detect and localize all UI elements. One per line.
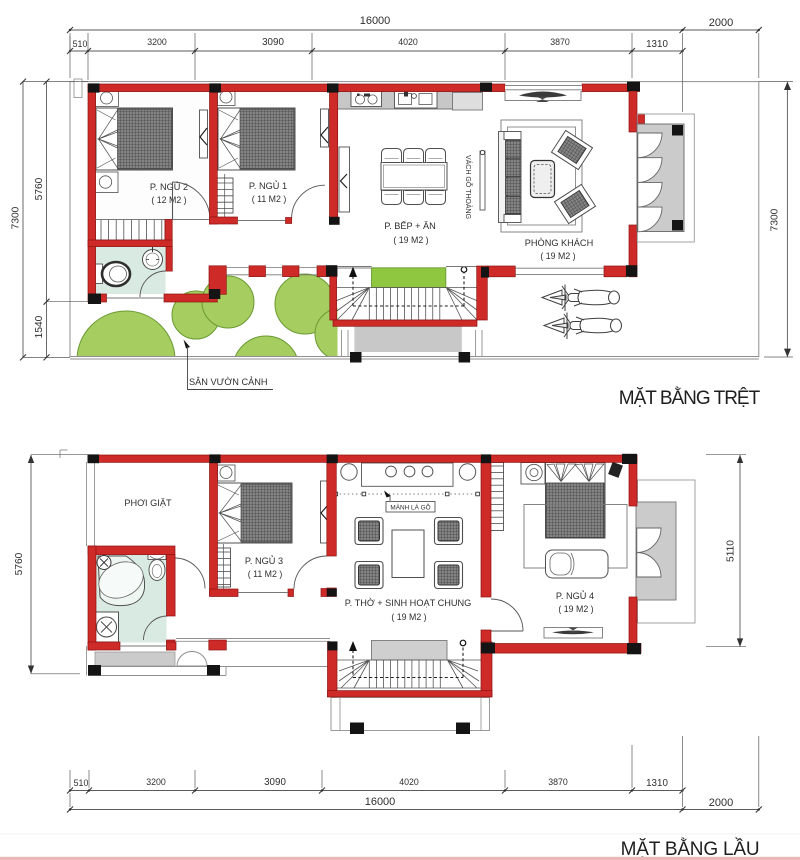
svg-text:P. BẾP + ĂN: P. BẾP + ĂN xyxy=(384,221,436,231)
svg-text:PHƠI GIẶT: PHƠI GIẶT xyxy=(124,498,172,508)
svg-text:510: 510 xyxy=(74,778,89,788)
svg-text:( 19 M2 ): ( 19 M2 ) xyxy=(558,604,593,614)
svg-text:4020: 4020 xyxy=(398,37,418,47)
svg-text:( 11 M2 ): ( 11 M2 ) xyxy=(252,194,287,204)
svg-text:MẶT BẰNG LẦU: MẶT BẰNG LẦU xyxy=(621,838,760,860)
svg-text:1310: 1310 xyxy=(646,778,668,789)
svg-text:5760: 5760 xyxy=(34,177,45,200)
svg-text:3870: 3870 xyxy=(550,37,570,47)
svg-text:( 19 M2 ): ( 19 M2 ) xyxy=(540,251,575,261)
svg-text:1540: 1540 xyxy=(34,315,45,338)
svg-text:2000: 2000 xyxy=(709,797,733,809)
svg-text:3200: 3200 xyxy=(147,37,167,47)
svg-text:P. NGỦ 1: P. NGỦ 1 xyxy=(249,180,287,191)
svg-text:4020: 4020 xyxy=(399,777,419,787)
svg-text:P. NGỦ 4: P. NGỦ 4 xyxy=(556,590,594,601)
svg-text:510: 510 xyxy=(73,39,88,49)
svg-text:( 12 M2 ): ( 12 M2 ) xyxy=(151,195,186,205)
svg-text:5760: 5760 xyxy=(14,552,25,575)
svg-text:5110: 5110 xyxy=(726,540,737,562)
svg-text:2000: 2000 xyxy=(709,17,733,29)
svg-text:16000: 16000 xyxy=(360,15,391,27)
svg-text:3870: 3870 xyxy=(548,777,568,787)
svg-text:1310: 1310 xyxy=(646,39,668,50)
svg-text:3200: 3200 xyxy=(146,777,166,787)
svg-text:MẶT BẰNG TRỆT: MẶT BẰNG TRỆT xyxy=(619,387,761,409)
svg-text:P. NGỦ 3: P. NGỦ 3 xyxy=(245,555,283,566)
svg-text:16000: 16000 xyxy=(365,796,396,808)
svg-text:SÂN VƯỜN CẢNH: SÂN VƯỜN CẢNH xyxy=(189,376,268,387)
svg-text:MÀNH LÁ GỖ: MÀNH LÁ GỖ xyxy=(390,503,430,512)
svg-text:P. NGỦ 2: P. NGỦ 2 xyxy=(150,181,188,192)
svg-text:PHÒNG KHÁCH: PHÒNG KHÁCH xyxy=(525,238,593,248)
svg-text:P. THỜ + SINH HOẠT CHUNG: P. THỜ + SINH HOẠT CHUNG xyxy=(345,598,472,608)
svg-text:7300: 7300 xyxy=(11,206,22,229)
svg-text:3090: 3090 xyxy=(264,777,286,788)
svg-text:( 19 M2 ): ( 19 M2 ) xyxy=(391,612,426,622)
svg-text:VÁCH GỖ THOẢNG: VÁCH GỖ THOẢNG xyxy=(464,155,473,219)
svg-text:3090: 3090 xyxy=(262,37,284,48)
svg-text:7300: 7300 xyxy=(770,208,781,231)
svg-text:( 11 M2 ): ( 11 M2 ) xyxy=(248,569,283,579)
svg-text:( 19 M2 ): ( 19 M2 ) xyxy=(393,235,428,245)
